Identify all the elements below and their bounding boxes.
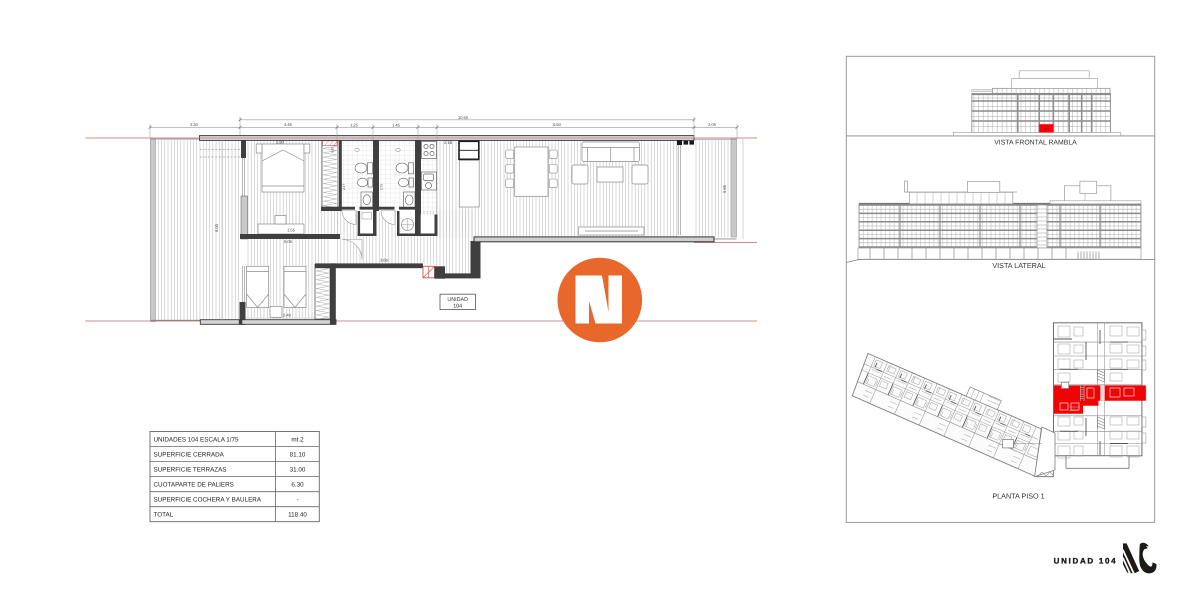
svg-text:-: - bbox=[296, 497, 298, 504]
svg-text:104: 104 bbox=[453, 304, 462, 310]
svg-text:UNIDAD 104: UNIDAD 104 bbox=[1054, 557, 1118, 566]
svg-text:PLANTA PISO 1: PLANTA PISO 1 bbox=[992, 492, 1044, 501]
svg-text:1.45: 1.45 bbox=[392, 122, 401, 127]
svg-text:TOTAL: TOTAL bbox=[154, 512, 174, 519]
svg-text:3.66: 3.66 bbox=[380, 258, 389, 263]
svg-text:3.30: 3.30 bbox=[190, 122, 199, 127]
svg-text:SUPERFICIE TERRAZAS: SUPERFICIE TERRAZAS bbox=[154, 466, 227, 473]
svg-text:6.60: 6.60 bbox=[553, 122, 562, 127]
svg-text:2.47: 2.47 bbox=[342, 184, 346, 190]
svg-text:2.40: 2.40 bbox=[283, 312, 292, 317]
svg-text:81.10: 81.10 bbox=[290, 451, 306, 458]
svg-text:2.05: 2.05 bbox=[708, 122, 717, 127]
svg-text:2.18: 2.18 bbox=[444, 140, 453, 145]
svg-text:31.00: 31.00 bbox=[290, 466, 306, 473]
svg-text:1.25: 1.25 bbox=[350, 122, 359, 127]
svg-text:VISTA LATERAL: VISTA LATERAL bbox=[992, 261, 1045, 270]
svg-text:mt.2: mt.2 bbox=[291, 436, 304, 443]
svg-text:CUOTAPARTE DE PALIERS: CUOTAPARTE DE PALIERS bbox=[154, 482, 234, 489]
svg-text:2.75: 2.75 bbox=[380, 184, 384, 190]
svg-text:4.90: 4.90 bbox=[331, 147, 335, 153]
svg-text:6.00: 6.00 bbox=[214, 223, 219, 232]
svg-text:118.40: 118.40 bbox=[288, 512, 307, 519]
svg-text:2.80: 2.80 bbox=[276, 140, 285, 145]
svg-text:10.50: 10.50 bbox=[458, 115, 469, 120]
svg-text:6.30: 6.30 bbox=[291, 482, 304, 489]
svg-text:1.55: 1.55 bbox=[287, 228, 296, 233]
svg-text:UNIDAD: UNIDAD bbox=[447, 297, 468, 303]
svg-text:5.05: 5.05 bbox=[284, 239, 293, 244]
svg-text:VISTA FRONTAL RAMBLA: VISTA FRONTAL RAMBLA bbox=[994, 139, 1077, 146]
svg-text:5.65: 5.65 bbox=[722, 184, 727, 193]
svg-text:SUPERFICIE CERRADA: SUPERFICIE CERRADA bbox=[154, 451, 225, 458]
svg-text:3.45: 3.45 bbox=[284, 122, 293, 127]
svg-text:UNIDADES 104 ESCALA 1/75: UNIDADES 104 ESCALA 1/75 bbox=[154, 436, 240, 443]
svg-text:U104: U104 bbox=[1043, 127, 1051, 131]
svg-text:SUPERFICIE COCHERA Y BAULERA: SUPERFICIE COCHERA Y BAULERA bbox=[154, 497, 262, 504]
